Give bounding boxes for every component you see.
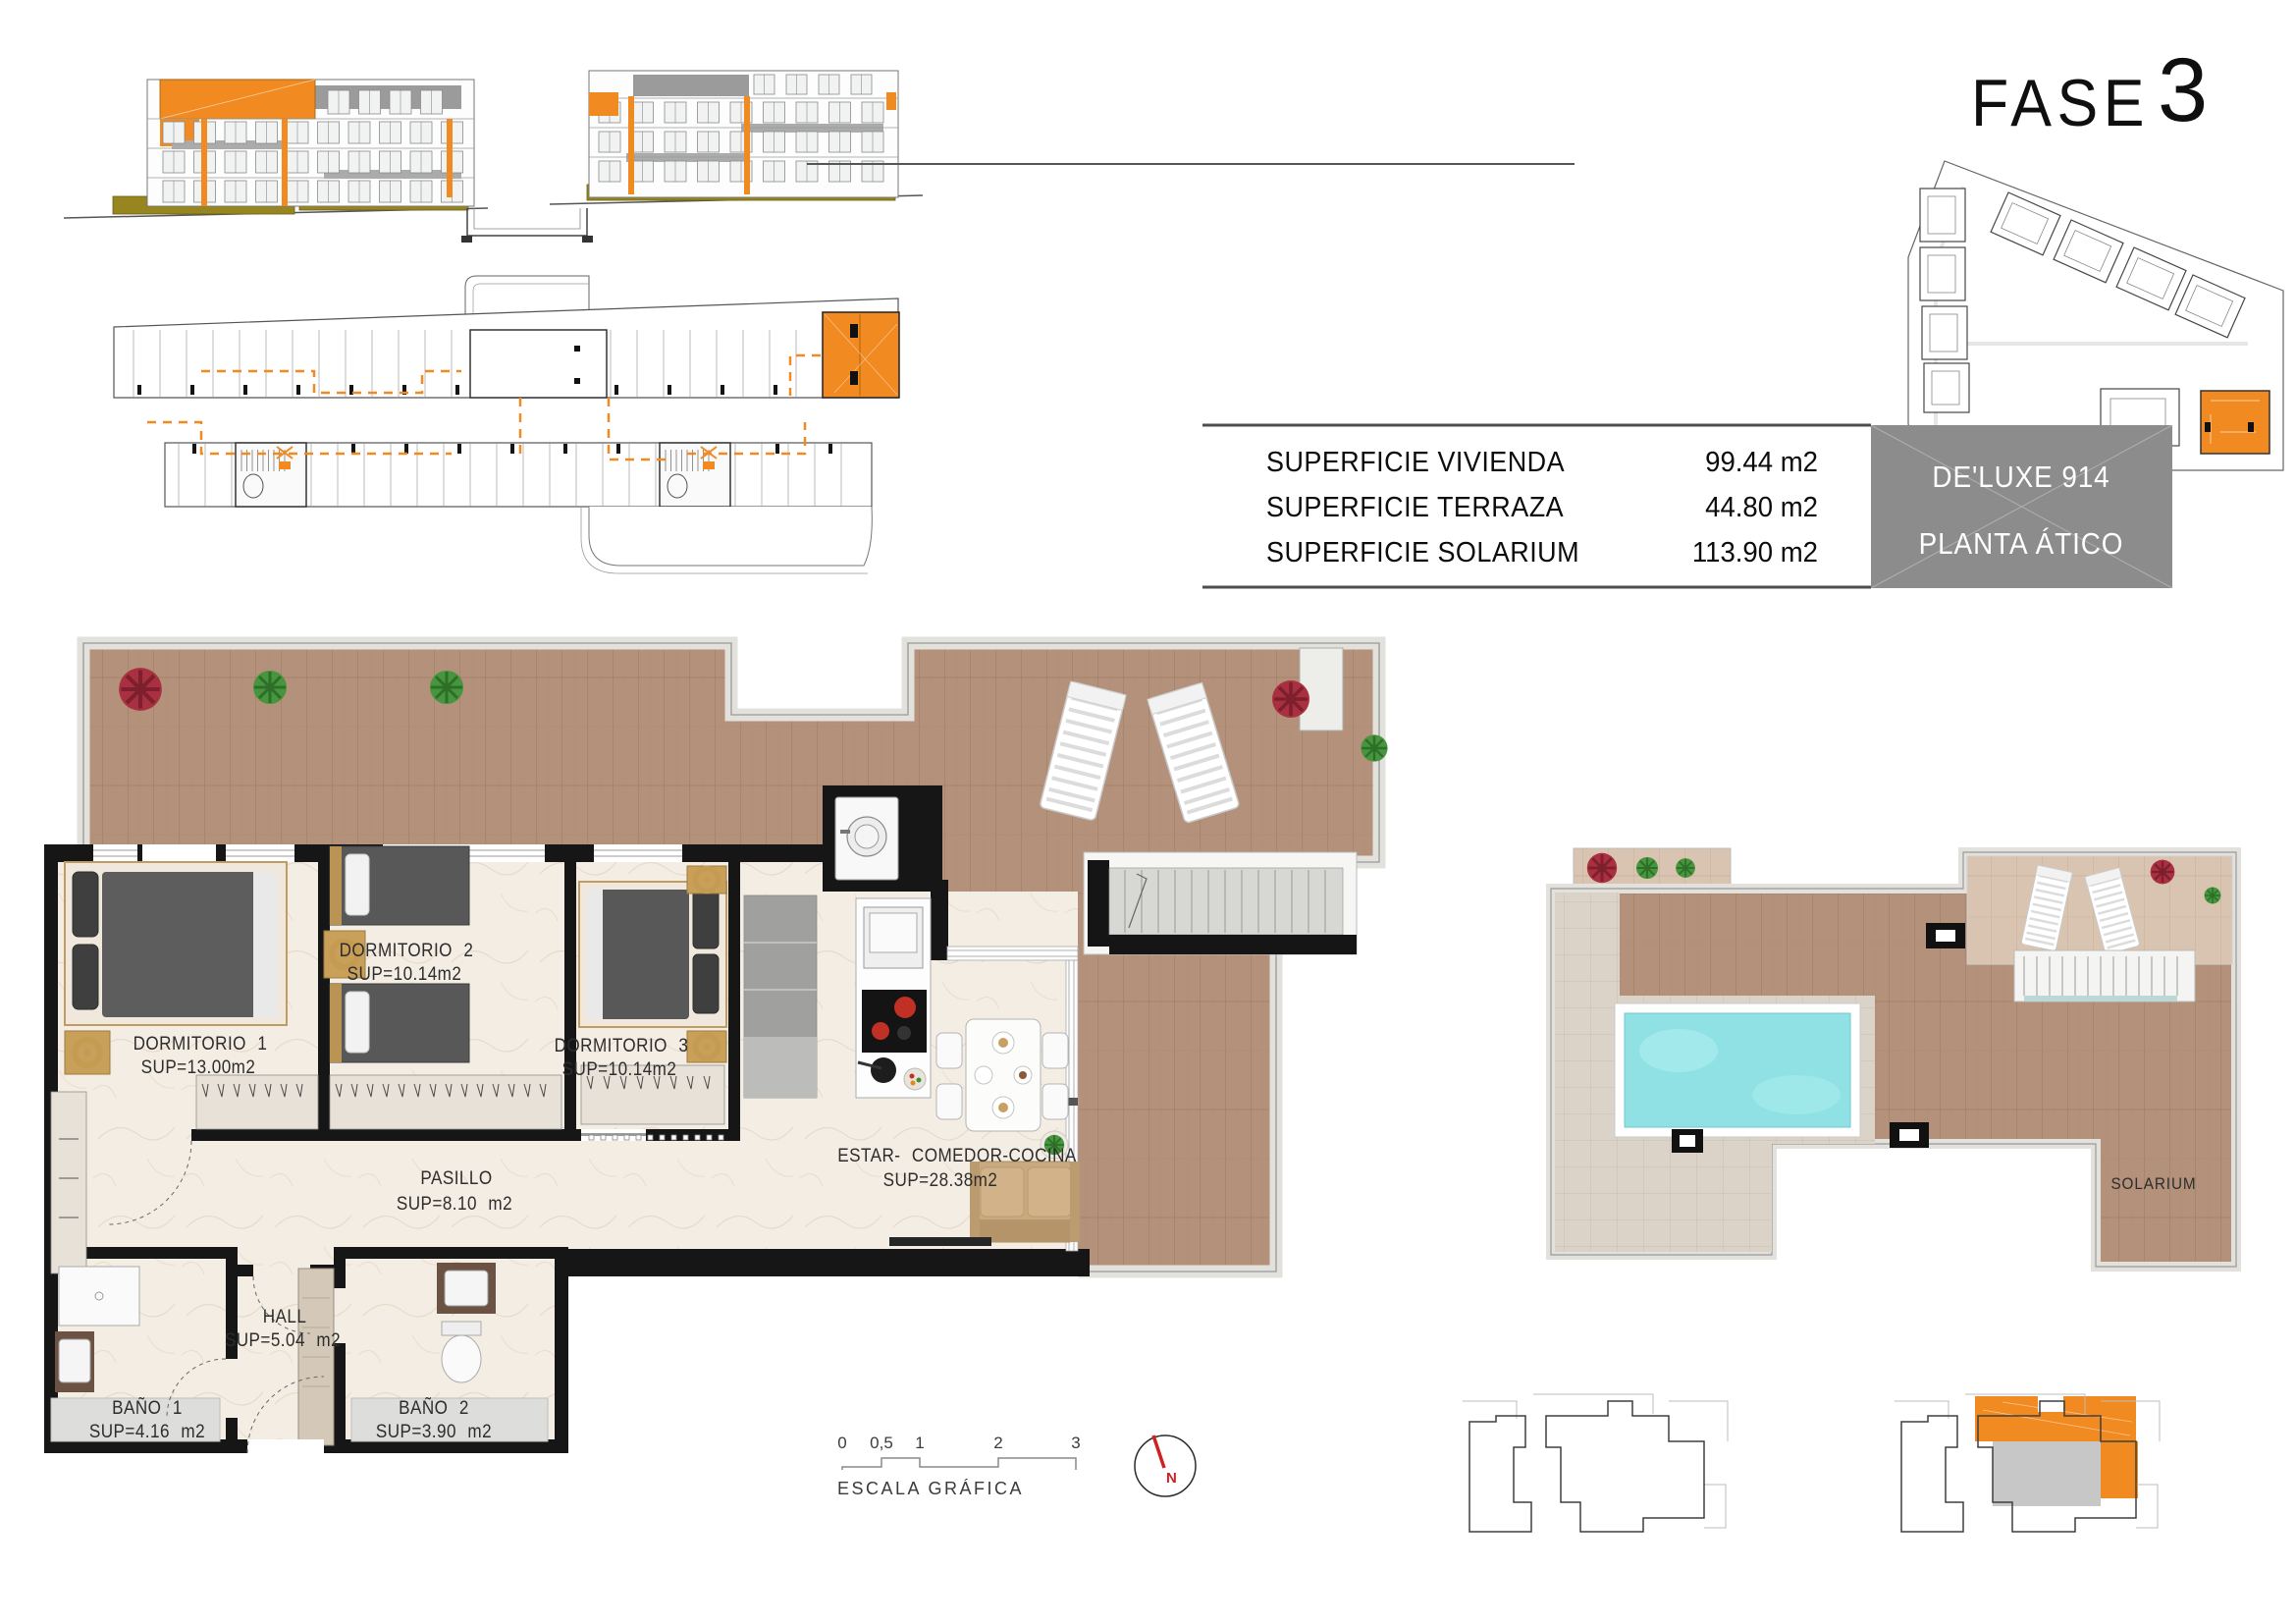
terrace-stairs xyxy=(1084,852,1357,954)
phase-number: 3 xyxy=(2158,39,2208,142)
solarium-stairs xyxy=(2014,950,2195,1001)
table-row-label: SUPERFICIE VIVIENDA xyxy=(1266,447,1565,479)
scale-tick: 1 xyxy=(915,1434,924,1453)
room-area-bano-1: SUP=4.16 m2 xyxy=(89,1422,205,1443)
tv-icon xyxy=(889,1237,991,1246)
solarium-plan xyxy=(1551,848,2236,1267)
green-plant-icon xyxy=(2205,888,2221,904)
key-plan-left xyxy=(1463,1394,1728,1532)
room-area-dormitorio-1: SUP=13.00m2 xyxy=(141,1057,256,1079)
red-plant-icon xyxy=(1272,680,1309,718)
room-area-hall: SUP=5.04 m2 xyxy=(225,1330,341,1352)
highlighted-site-building xyxy=(2201,391,2269,454)
table-row-label: SUPERFICIE TERRAZA xyxy=(1266,492,1564,524)
scale-tick: 0 xyxy=(837,1434,846,1453)
scale-caption: ESCALA GRÁFICA xyxy=(837,1479,1024,1499)
pool xyxy=(1615,1003,1860,1137)
highlighted-storage-unit xyxy=(823,312,899,398)
room-label-hall: HALL xyxy=(263,1307,307,1328)
unit-badge-floor: PLANTA ÁTICO xyxy=(1919,526,2124,562)
room-label-bano-2: BAÑO 2 xyxy=(399,1398,469,1420)
room-area-dormitorio-2: SUP=10.14m2 xyxy=(347,964,462,986)
room-area-dormitorio-3: SUP=10.14m2 xyxy=(562,1059,677,1081)
table-row-value: 99.44 m2 xyxy=(1611,447,1818,479)
induction-hob-icon xyxy=(862,990,927,1053)
unit-badge-name: DE'LUXE 914 xyxy=(1932,460,2109,495)
green-plant-icon xyxy=(1361,734,1387,761)
room-area-estar: SUP=28.38m2 xyxy=(883,1170,998,1192)
room-label-bano-1: BAÑO 1 xyxy=(112,1398,183,1420)
north-label: N xyxy=(1166,1470,1177,1487)
room-label-estar: ESTAR- COMEDOR-COCINA xyxy=(837,1146,1076,1167)
red-plant-icon xyxy=(1587,853,1617,883)
green-plant-icon xyxy=(253,671,287,704)
room-area-bano-2: SUP=3.90 m2 xyxy=(376,1422,492,1443)
scale-bar-graphic xyxy=(842,1458,1076,1470)
room-label-dormitorio-1: DORMITORIO 1 xyxy=(133,1034,268,1056)
room-label-pasillo: PASILLO xyxy=(420,1168,492,1190)
section-cut xyxy=(461,208,593,243)
green-plant-icon xyxy=(1636,857,1658,879)
room-label-dormitorio-3: DORMITORIO 3 xyxy=(555,1036,689,1057)
table-row-value: 113.90 m2 xyxy=(1611,537,1818,569)
pan-icon xyxy=(871,1057,896,1083)
scale-tick: 3 xyxy=(1071,1434,1080,1453)
scale-tick: 0,5 xyxy=(870,1434,893,1453)
table-row-label: SUPERFICIE SOLARIUM xyxy=(1266,537,1579,569)
scale-tick: 2 xyxy=(993,1434,1002,1453)
sheet-graphics xyxy=(0,0,2296,1624)
green-plant-icon xyxy=(1676,858,1695,878)
north-compass-icon xyxy=(1135,1435,1196,1496)
elevation-right-building xyxy=(550,71,923,204)
phase-title: FASE xyxy=(1971,65,2150,141)
unit-badge-box xyxy=(1871,425,2172,588)
elevation-left-building xyxy=(64,80,488,218)
red-plant-icon xyxy=(2151,860,2175,885)
key-plan-right xyxy=(1895,1394,2160,1532)
garage-level-plan xyxy=(114,276,899,573)
room-area-pasillo: SUP=8.10 m2 xyxy=(397,1194,512,1216)
green-plant-icon xyxy=(430,671,463,704)
room-label-dormitorio-2: DORMITORIO 2 xyxy=(340,941,474,962)
solarium-label: SOLARIUM xyxy=(2110,1174,2196,1194)
key-highlight-gray xyxy=(1993,1441,2101,1506)
table-row-value: 44.80 m2 xyxy=(1611,492,1818,524)
red-plant-icon xyxy=(119,668,162,711)
site-plan xyxy=(1908,161,2283,470)
floor-plan-sheet: FASE 3 SUPERFICIE VIVIENDA SUPERFICIE TE… xyxy=(0,0,2296,1624)
